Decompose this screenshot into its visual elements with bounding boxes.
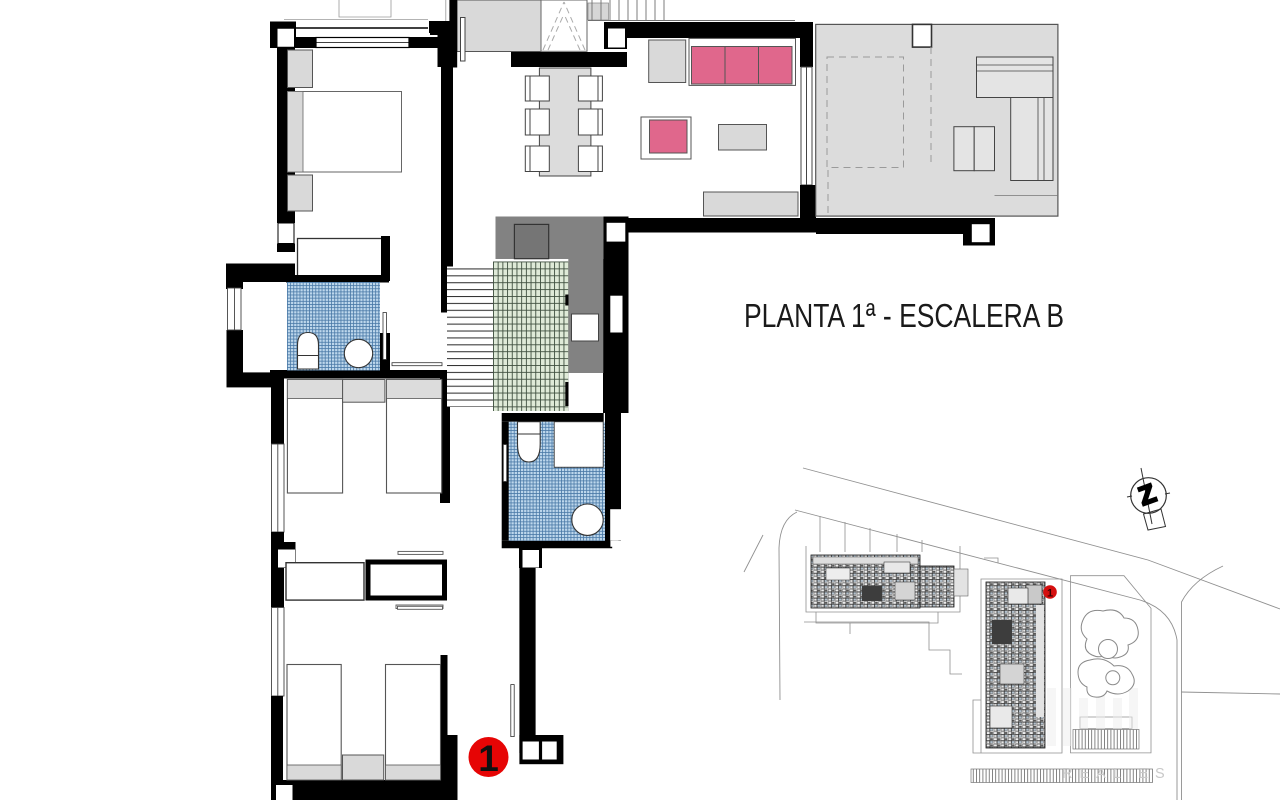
svg-text:1: 1 — [1047, 588, 1053, 600]
svg-text:1: 1 — [478, 738, 499, 779]
svg-text:REAL ES: REAL ES — [1062, 766, 1172, 782]
svg-text:PLANTA 1ª - ESCALERA B: PLANTA 1ª - ESCALERA B — [744, 298, 1064, 335]
